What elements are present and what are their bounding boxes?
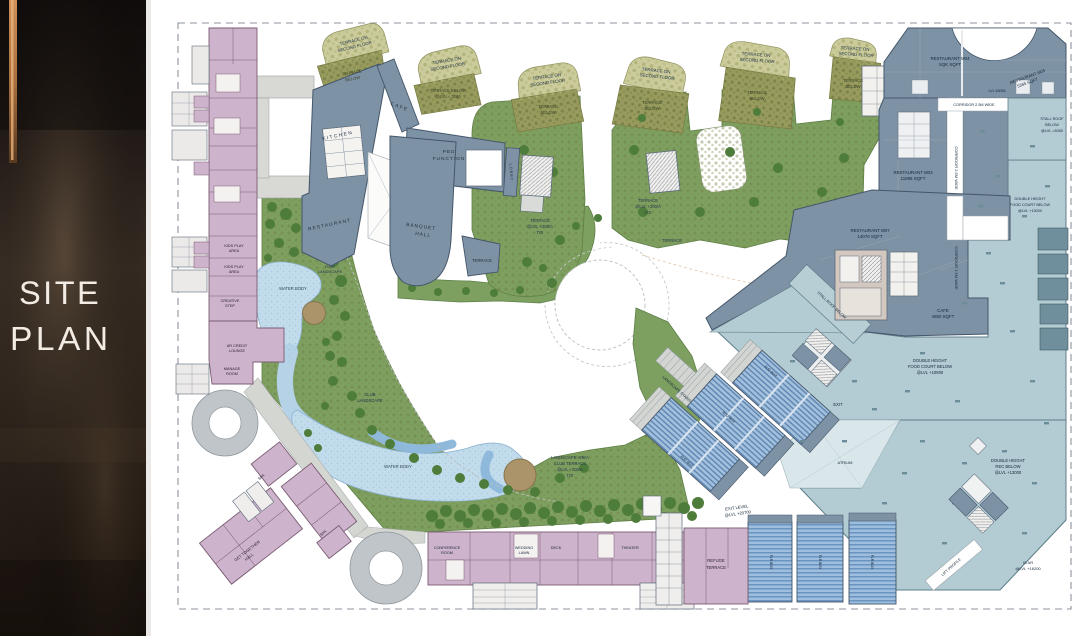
svg-text:MANAGE: MANAGE — [224, 367, 241, 371]
svg-text:TERRACE: TERRACE — [706, 565, 726, 570]
svg-text:CORRIDOR 3 5M WIDE: CORRIDOR 3 5M WIDE — [954, 246, 959, 290]
svg-text:STEP: STEP — [225, 304, 235, 308]
svg-text:@LVL +10800: @LVL +10800 — [917, 370, 944, 375]
svg-text:EXIT: EXIT — [833, 402, 843, 407]
svg-text:TERRACE: TERRACE — [530, 218, 550, 223]
svg-text:DOUBLE HEIGHT: DOUBLE HEIGHT — [913, 358, 948, 363]
svg-text:FUNCTION: FUNCTION — [433, 156, 466, 162]
svg-text:BELOW: BELOW — [644, 106, 659, 111]
svg-text:TERRACE: TERRACE — [538, 104, 558, 109]
svg-text:FLR BOX: FLR BOX — [870, 555, 874, 570]
svg-text:BELOW: BELOW — [749, 96, 764, 101]
svg-text:WEDDING: WEDDING — [515, 546, 533, 550]
svg-text:DECK: DECK — [551, 546, 562, 550]
svg-text:FOOD COURT BELOW: FOOD COURT BELOW — [1010, 203, 1051, 207]
svg-text:CLUB TERRACE: CLUB TERRACE — [554, 461, 586, 466]
svg-text:CORRIDOR 2.5M WIDE: CORRIDOR 2.5M WIDE — [953, 103, 995, 107]
svg-text:TERRACE BELOW: TERRACE BELOW — [430, 88, 466, 93]
svg-text:@LVL +13000: @LVL +13000 — [1018, 209, 1042, 213]
svg-text:DOUBLE HEIGHT: DOUBLE HEIGHT — [991, 458, 1026, 463]
svg-text:CAFE: CAFE — [937, 308, 949, 313]
svg-text:TERRACE: TERRACE — [638, 198, 658, 203]
svg-text:@LVL =5050: @LVL =5050 — [1041, 129, 1063, 133]
svg-text:PBD: PBD — [443, 149, 456, 155]
svg-text:CORRIDOR 2.5M WIDE: CORRIDOR 2.5M WIDE — [954, 146, 959, 190]
svg-text:CONFERENCE: CONFERENCE — [434, 546, 461, 550]
svg-text:AREA: AREA — [229, 249, 240, 253]
svg-text:4650 SQFT: 4650 SQFT — [932, 314, 955, 319]
svg-text:IS AR: IS AR — [1023, 560, 1033, 565]
svg-text:LANDSCAPE AREA: LANDSCAPE AREA — [551, 455, 589, 460]
svg-text:RESTAURANT M04: RESTAURANT M04 — [930, 56, 970, 61]
svg-text:CLUB: CLUB — [364, 392, 375, 397]
svg-text:LANDSCAPE: LANDSCAPE — [318, 269, 343, 274]
svg-text:BELOW: BELOW — [540, 110, 555, 115]
svg-text:BELOW: BELOW — [845, 84, 860, 89]
svg-text:AREA: AREA — [229, 270, 240, 274]
svg-text:REFUGE: REFUGE — [707, 558, 725, 563]
svg-text:FLR BOX: FLR BOX — [818, 555, 822, 570]
svg-text:TERRACE: TERRACE — [662, 238, 682, 243]
svg-text:TOI: TOI — [537, 230, 544, 235]
svg-text:ATRIUM: ATRIUM — [837, 460, 852, 465]
svg-text:FOOD COURT BELOW: FOOD COURT BELOW — [908, 364, 952, 369]
svg-text:11895 SQFT: 11895 SQFT — [901, 176, 926, 181]
svg-text:KIDS PLAY: KIDS PLAY — [224, 265, 244, 269]
svg-text:LANDSCAPE: LANDSCAPE — [357, 398, 383, 403]
svg-text:TERRACE: TERRACE — [747, 90, 767, 95]
svg-text:@LVL +13000: @LVL +13000 — [995, 470, 1022, 475]
svg-text:@LVL +200/A: @LVL +200/A — [527, 224, 553, 229]
svg-text:WATER BODY: WATER BODY — [279, 286, 307, 291]
svg-text:AR CREDIT: AR CREDIT — [227, 344, 248, 348]
svg-text:SITE: SITE — [19, 275, 101, 311]
svg-text:CREATIVE: CREATIVE — [221, 299, 240, 303]
svg-text:TERRACE: TERRACE — [642, 100, 662, 105]
svg-text:@LVL +200/A: @LVL +200/A — [557, 467, 583, 472]
svg-text:WATER BODY: WATER BODY — [384, 464, 412, 469]
svg-text:TERRACE: TERRACE — [843, 78, 863, 83]
svg-text:REC BELOW: REC BELOW — [995, 464, 1020, 469]
svg-text:14070 SQFT: 14070 SQFT — [857, 234, 882, 239]
svg-text:LOUNGE: LOUNGE — [229, 349, 246, 353]
svg-text:THEATER: THEATER — [621, 546, 639, 550]
svg-text:RESTAURANT M03: RESTAURANT M03 — [893, 170, 933, 175]
svg-text:LAWN: LAWN — [519, 551, 530, 555]
svg-text:STALL ROOF: STALL ROOF — [1040, 117, 1064, 121]
svg-text:@LVL = 3080: @LVL = 3080 — [435, 94, 461, 99]
svg-text:RESTAURANT M07: RESTAURANT M07 — [850, 228, 890, 233]
svg-text:KIDS PLAY: KIDS PLAY — [224, 244, 244, 248]
svg-text:DOUBLE HEIGHT: DOUBLE HEIGHT — [1014, 197, 1046, 201]
svg-text:LVL 43058: LVL 43058 — [989, 89, 1006, 93]
svg-text:@LVL +200/A: @LVL +200/A — [635, 204, 661, 209]
svg-text:TERRACE: TERRACE — [472, 258, 492, 263]
svg-text:FLR BOX: FLR BOX — [769, 555, 773, 570]
svg-text:TOI: TOI — [645, 210, 652, 215]
svg-text:@LVL +16200: @LVL +16200 — [1015, 566, 1041, 571]
svg-text:TOI: TOI — [567, 473, 574, 478]
svg-text:ROOM: ROOM — [441, 551, 453, 555]
svg-text:PLAN: PLAN — [10, 321, 112, 358]
svg-text:ROOM: ROOM — [226, 372, 238, 376]
svg-text:BELOW: BELOW — [1045, 123, 1059, 127]
svg-text:SQK SQFT: SQK SQFT — [939, 62, 962, 67]
